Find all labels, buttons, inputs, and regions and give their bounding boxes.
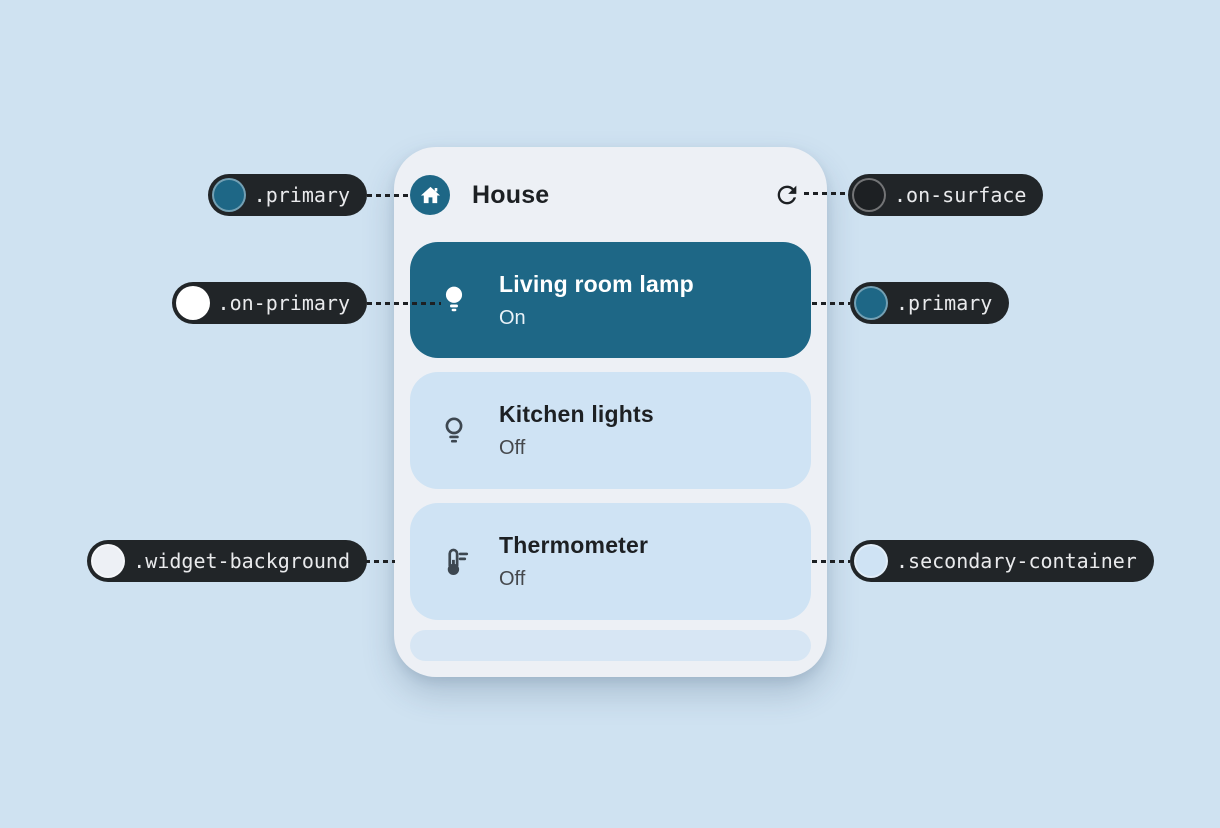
color-swatch <box>212 178 246 212</box>
callout-label: .on-primary <box>218 291 350 315</box>
color-swatch <box>91 544 125 578</box>
callout-label: .primary <box>254 183 350 207</box>
connector-line <box>812 560 850 563</box>
callout-widget-background: .widget-background <box>87 540 367 582</box>
partial-next-item <box>410 630 811 661</box>
device-card-text: Thermometer Off <box>499 532 648 591</box>
device-card-thermometer[interactable]: Thermometer Off <box>410 503 811 620</box>
lightbulb-outline-icon <box>437 414 471 448</box>
lightbulb-filled-icon <box>437 283 471 317</box>
device-status: Off <box>499 436 654 460</box>
device-name: Living room lamp <box>499 271 694 298</box>
color-swatch <box>852 178 886 212</box>
device-name: Kitchen lights <box>499 401 654 428</box>
connector-line <box>365 560 395 563</box>
callout-on-primary: .on-primary <box>172 282 367 324</box>
callout-primary-card: .primary <box>850 282 1009 324</box>
color-swatch <box>854 286 888 320</box>
device-name: Thermometer <box>499 532 648 559</box>
home-widget: House Living room lamp On <box>394 147 827 677</box>
refresh-icon <box>773 181 801 209</box>
refresh-button[interactable] <box>772 180 802 210</box>
connector-line <box>804 192 848 195</box>
device-status: On <box>499 306 694 330</box>
color-swatch <box>854 544 888 578</box>
house-icon <box>419 184 442 207</box>
widget-header: House <box>410 175 811 215</box>
device-card-kitchen-lights[interactable]: Kitchen lights Off <box>410 372 811 489</box>
widget-title: House <box>472 181 549 210</box>
device-card-text: Kitchen lights Off <box>499 401 654 460</box>
connector-line <box>812 302 850 305</box>
connector-line <box>367 302 441 305</box>
thermostat-icon <box>437 545 471 579</box>
callout-label: .on-surface <box>894 183 1026 207</box>
callout-label: .widget-background <box>133 549 350 573</box>
color-swatch <box>176 286 210 320</box>
callout-on-surface: .on-surface <box>848 174 1043 216</box>
callout-primary-header: .primary <box>208 174 367 216</box>
connector-line <box>367 194 411 197</box>
device-status: Off <box>499 567 648 591</box>
callout-secondary-container: .secondary-container <box>850 540 1154 582</box>
device-card-text: Living room lamp On <box>499 271 694 330</box>
callout-label: .secondary-container <box>896 549 1137 573</box>
house-badge <box>410 175 450 215</box>
diagram-canvas: House Living room lamp On <box>0 0 1220 828</box>
callout-label: .primary <box>896 291 992 315</box>
device-card-living-room-lamp[interactable]: Living room lamp On <box>410 242 811 358</box>
